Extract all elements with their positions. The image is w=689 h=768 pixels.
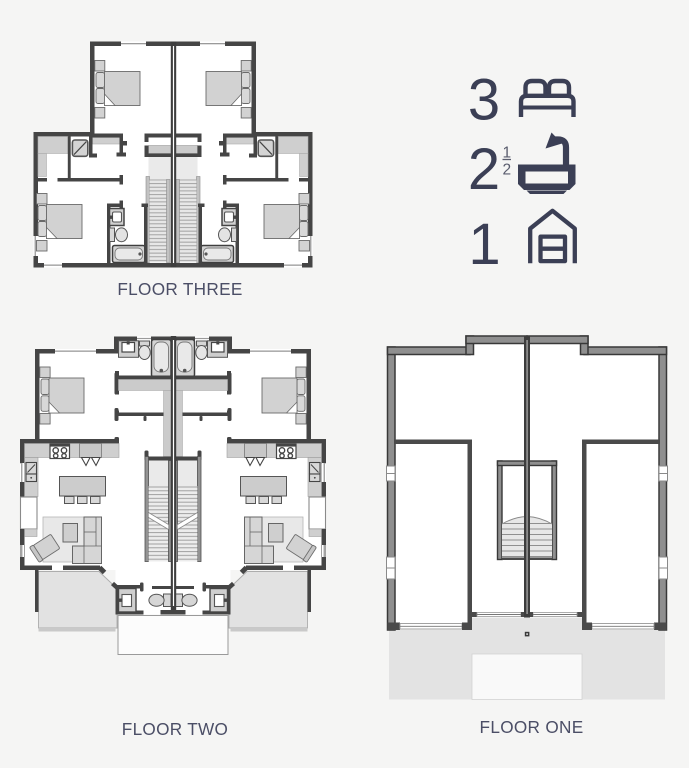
- svg-text:FLOOR ONE: FLOOR ONE: [480, 717, 584, 737]
- svg-text:2: 2: [502, 162, 511, 179]
- svg-text:2: 2: [468, 137, 500, 202]
- svg-text:FLOOR THREE: FLOOR THREE: [117, 279, 242, 299]
- svg-text:FLOOR TWO: FLOOR TWO: [122, 719, 228, 739]
- svg-text:3: 3: [468, 68, 500, 133]
- svg-text:1: 1: [468, 212, 500, 277]
